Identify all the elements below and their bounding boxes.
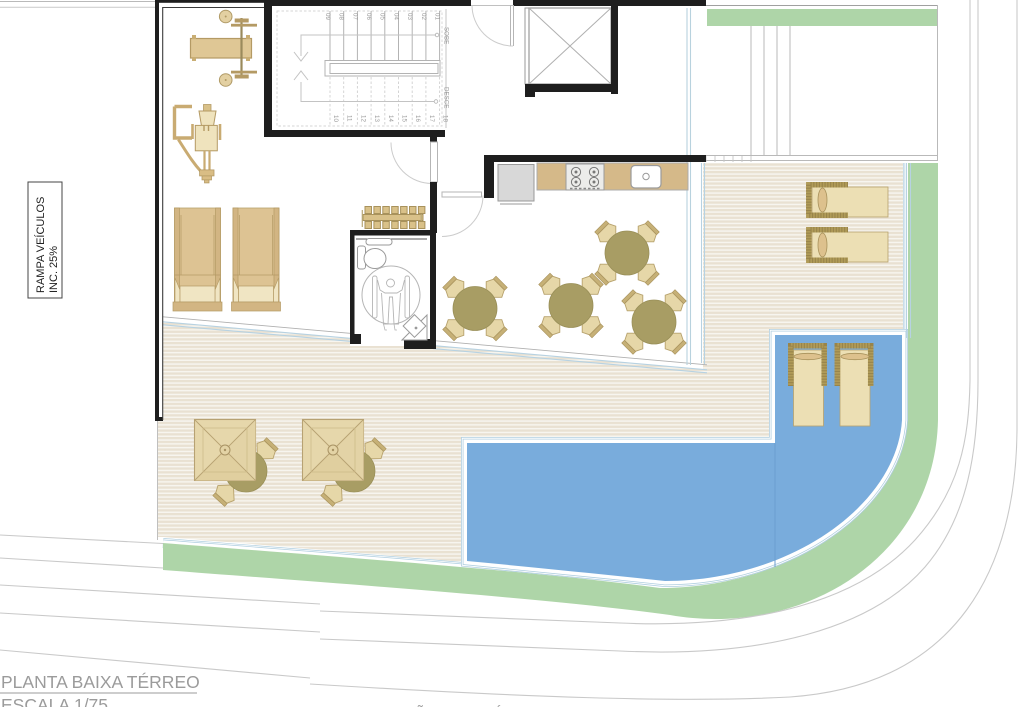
svg-text:17: 17 (428, 115, 435, 122)
svg-text:09: 09 (324, 13, 331, 20)
svg-text:11: 11 (346, 115, 353, 122)
svg-text:05: 05 (379, 13, 386, 20)
svg-text:13: 13 (373, 115, 380, 122)
svg-text:RAMPA VEÍCULOS: RAMPA VEÍCULOS (34, 197, 47, 293)
svg-text:12: 12 (359, 115, 366, 122)
svg-text:02: 02 (420, 13, 427, 20)
svg-text:16: 16 (414, 115, 421, 122)
svg-text:INC. 25%: INC. 25% (48, 246, 60, 293)
svg-text:14: 14 (387, 115, 394, 122)
svg-text:DESCE: DESCE (443, 87, 450, 108)
svg-text:SOBE: SOBE (443, 27, 450, 44)
svg-text:07: 07 (351, 13, 358, 20)
svg-text:01: 01 (434, 13, 441, 20)
svg-text:PLANTA BAIXA TÉRREO: PLANTA BAIXA TÉRREO (1, 672, 200, 692)
svg-text:15: 15 (401, 115, 408, 122)
svg-text:04: 04 (392, 13, 399, 20)
svg-text:08: 08 (338, 13, 345, 20)
svg-text:03: 03 (406, 13, 413, 20)
svg-text:ã: ã (416, 703, 425, 707)
svg-text:10: 10 (332, 115, 339, 122)
svg-text:18: 18 (442, 115, 449, 122)
svg-text:06: 06 (365, 13, 372, 20)
svg-text:ESCALA 1/75: ESCALA 1/75 (1, 695, 108, 707)
svg-text:é: é (494, 703, 502, 707)
